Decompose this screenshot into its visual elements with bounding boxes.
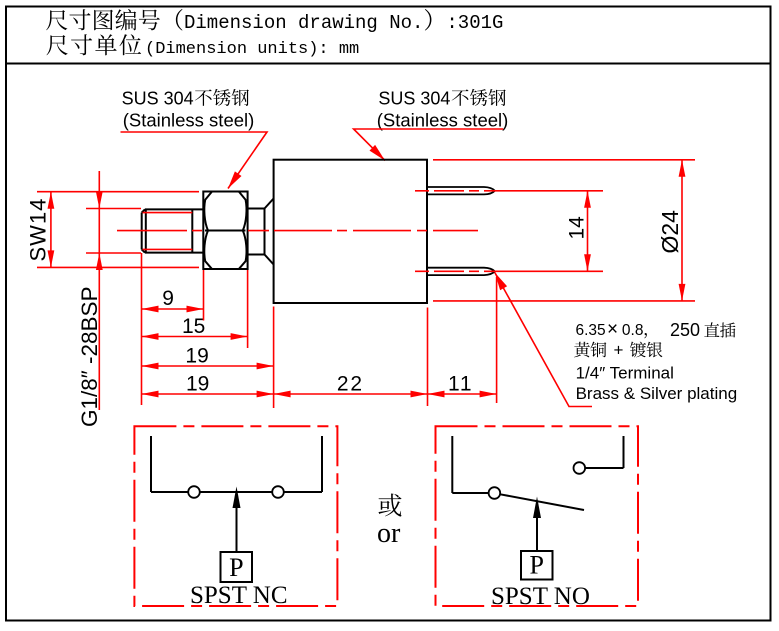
svg-text:SPST NO: SPST NO (491, 583, 590, 610)
svg-text:G1/8″ -28BSP: G1/8″ -28BSP (77, 286, 102, 427)
svg-text:SUS 304: SUS 304 (378, 89, 450, 109)
svg-text:22: 22 (337, 373, 364, 396)
svg-text:9: 9 (162, 287, 174, 310)
svg-text:1/4″ Terminal: 1/4″ Terminal (576, 363, 674, 382)
svg-text:Ø24: Ø24 (657, 210, 683, 254)
svg-text:19: 19 (185, 345, 208, 368)
svg-text:0.8: 0.8 (622, 322, 644, 339)
svg-text:SW14: SW14 (26, 198, 51, 262)
svg-text:P: P (229, 553, 243, 582)
svg-text:or: or (377, 518, 401, 549)
svg-text:(Stainless steel): (Stainless steel) (377, 110, 509, 131)
svg-text:(Dimension units): mm: (Dimension units): mm (145, 40, 359, 59)
svg-text:11: 11 (448, 373, 473, 396)
svg-text:250: 250 (670, 320, 700, 340)
svg-text:×: × (607, 319, 618, 340)
svg-text:15: 15 (182, 315, 205, 338)
svg-text::301G: :301G (446, 12, 503, 34)
svg-text:6.35: 6.35 (576, 322, 606, 339)
svg-text:+: + (614, 341, 624, 360)
svg-text:(Stainless steel): (Stainless steel) (123, 110, 255, 131)
svg-text:19: 19 (186, 373, 209, 396)
svg-text:14: 14 (566, 216, 589, 240)
svg-text:Dimension drawing No.: Dimension drawing No. (184, 12, 423, 34)
svg-text:SPST NC: SPST NC (190, 582, 288, 609)
svg-text:SUS 304: SUS 304 (122, 89, 194, 109)
svg-text:Brass & Silver plating: Brass & Silver plating (576, 384, 738, 403)
svg-text:P: P (529, 551, 543, 580)
